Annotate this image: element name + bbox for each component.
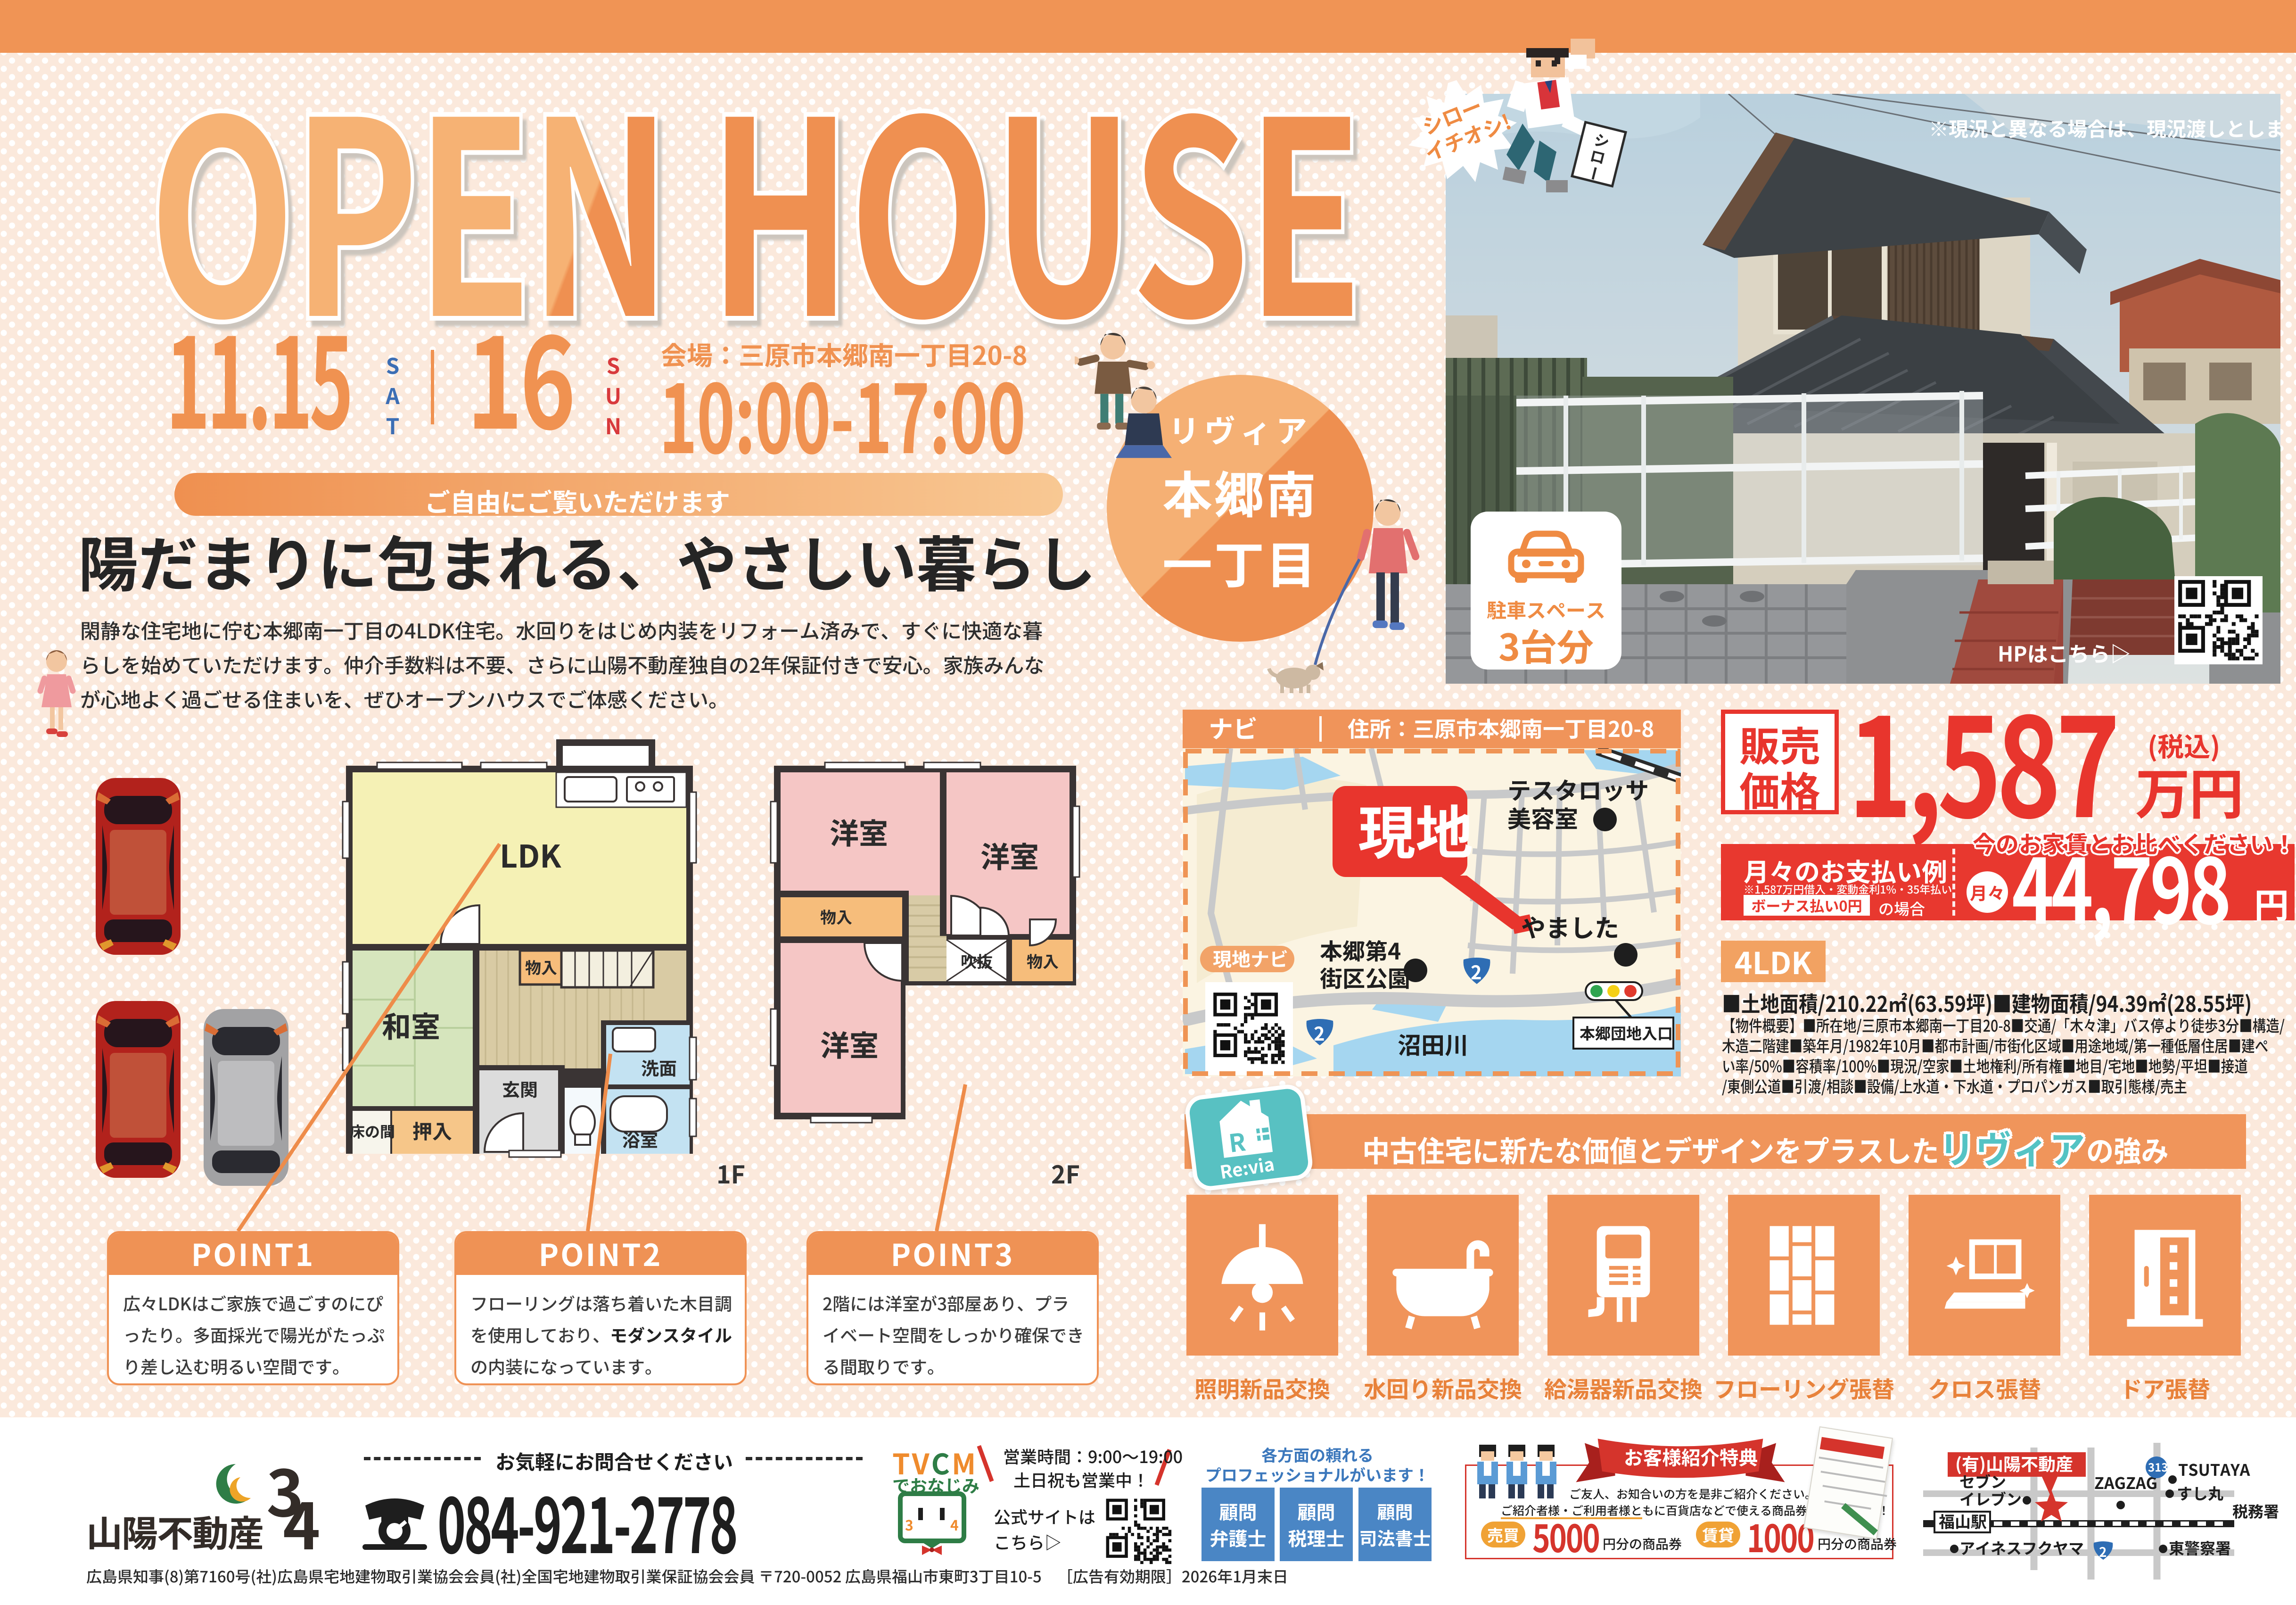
svg-text:福山駅: 福山駅 (1939, 1509, 1987, 1532)
svg-text:税務署: 税務署 (2232, 1499, 2279, 1522)
svg-text:イレブン: イレブン (1959, 1487, 2022, 1510)
svg-text:すし丸: すし丸 (2177, 1481, 2223, 1504)
svg-text:313: 313 (2148, 1458, 2168, 1475)
svg-text:2: 2 (2099, 1542, 2107, 1561)
svg-text:お客様紹介特典: お客様紹介特典 (1624, 1443, 1758, 1471)
svg-text:東警察署: 東警察署 (2169, 1536, 2231, 1559)
svg-text:アイネスフクヤマ: アイネスフクヤマ (1959, 1536, 2084, 1559)
svg-text:4: 4 (950, 1514, 959, 1535)
svg-text:3: 3 (905, 1514, 913, 1535)
svg-text:TSUTAYA: TSUTAYA (2178, 1457, 2250, 1481)
